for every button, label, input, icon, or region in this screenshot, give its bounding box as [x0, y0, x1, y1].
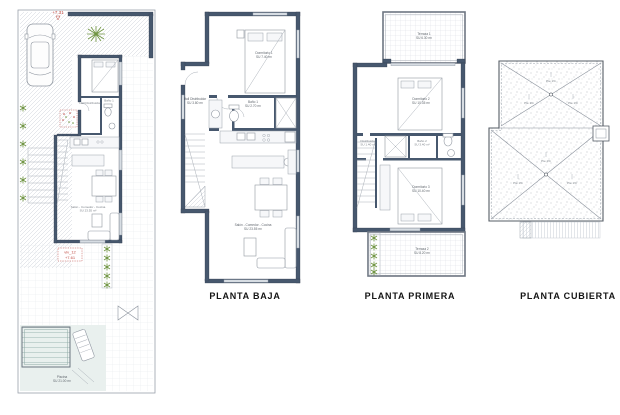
side-yard [122, 56, 153, 243]
floorplan-sheet: +7.31 [0, 0, 620, 415]
site-kitchen [70, 137, 119, 166]
window [297, 150, 300, 172]
kitchen-counter [220, 131, 296, 174]
pool-area-label: SU 21.00 m² [53, 379, 71, 383]
caption-planta-primera: PLANTA PRIMERA [365, 291, 456, 301]
planta-cubierta-plan: Pte 1% Pte 1% Pte 1% Pte 1% Pte 1% Pte 1… [489, 61, 616, 301]
window [462, 175, 465, 205]
slope-label: Pte 1% [541, 159, 551, 163]
terraza1-area: SU 6.30 m² [416, 36, 432, 40]
window [297, 30, 300, 58]
terrace2-slider [390, 228, 420, 231]
boundary-wall-right [149, 14, 153, 58]
site-bedroom [92, 60, 118, 92]
bano1-area: SU 2.70 m² [245, 104, 261, 108]
unit-tag: viv_12 +7.61 [58, 248, 82, 261]
window [119, 150, 122, 170]
window [119, 213, 122, 235]
dormitorio2-area: SU 10.35 m² [412, 101, 430, 105]
site-sofa [88, 213, 119, 240]
site-bathroom [104, 104, 115, 129]
entry-patio-paving [72, 16, 149, 56]
dining-table [255, 178, 287, 217]
site-dining [92, 170, 116, 202]
site-hall-label: Hall Distribuidor [79, 101, 100, 105]
window [297, 216, 300, 248]
caption-planta-baja: PLANTA BAJA [209, 291, 280, 301]
slope-label: Pte 1% [546, 79, 556, 83]
pergola-strip [523, 222, 600, 238]
unit-elevation: +7.61 [65, 255, 76, 260]
pergola-post [520, 222, 531, 238]
pool [22, 327, 70, 367]
car-icon [25, 24, 55, 86]
caption-planta-cubierta: PLANTA CUBIERTA [520, 291, 616, 301]
entry-door-arc [185, 72, 198, 85]
boundary-wall-top [68, 12, 153, 16]
terrace1-slider [391, 63, 455, 66]
dormitorio3-area: SU 10.40 m² [412, 189, 430, 193]
site-salon-area: SU 23.55 m² [80, 209, 97, 213]
floorplan-canvas: +7.31 [0, 0, 620, 415]
site-plan: +7.31 [18, 10, 155, 393]
roof-outline [489, 61, 603, 221]
dormitorio1-area: SU 7.40 m² [256, 55, 272, 59]
bed-icon [237, 30, 285, 93]
stairs [185, 134, 205, 207]
planta-primera-plan: Terraza 1 SU 6.30 m² Dormitori [353, 12, 465, 301]
planta-baja-plan: Dormitorio 1 SU 7.40 m² Hall Distribuido… [181, 12, 300, 301]
distribuidor-area: SU 1.40 m² [360, 143, 375, 147]
bed-icon [380, 165, 442, 224]
pool-area: Piscina SU 21.00 m² [20, 325, 106, 391]
slope-label: Pte 1% [513, 181, 523, 185]
window [119, 62, 122, 85]
window [224, 280, 268, 283]
slope-label: Pte 1% [567, 181, 577, 185]
slope-label: Pte 1% [524, 101, 534, 105]
unit-id: viv_12 [64, 250, 76, 255]
slope-label: Pte 1% [568, 101, 578, 105]
window [80, 240, 105, 243]
stairs [357, 142, 375, 208]
sofa-icon [244, 228, 296, 268]
chimney-icon [593, 126, 609, 141]
salon-area: SU 23.55 m² [244, 227, 262, 231]
bano2-area: SU 3.40 m² [414, 143, 429, 147]
window [462, 88, 465, 118]
elevation-label: +7.31 [52, 10, 64, 15]
site-bano-label: Baño 1 [104, 99, 114, 103]
window [253, 13, 287, 16]
terraza2-area: SU 8.20 m² [414, 251, 430, 255]
hall-area: SU 3.80 m² [187, 101, 203, 105]
